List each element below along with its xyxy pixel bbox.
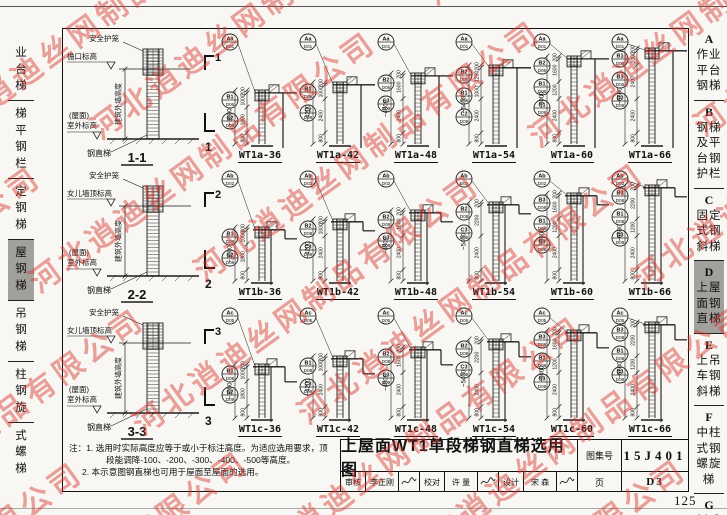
ref-bubble: AcD05 [456,308,472,324]
ref-code: Aa [539,36,547,42]
ref-bubble: C3D09 [300,242,316,258]
dim-label: 2200 [631,198,637,209]
dim-label: 1800 [241,251,247,262]
dim-label: 1000 [319,86,325,97]
ref-bubble: AbD02 [378,171,394,187]
diagram-rows: 建筑外墙高度檐口标高安全护笼(屋面)室外标高钢直梯1-11 1~36002001… [63,29,688,440]
ref-code: C1 [539,102,546,108]
ref-sheet: D09 [538,110,547,115]
ref-code: B3 [617,74,624,80]
ref-bubble: C3D09 [378,96,394,112]
dim-label: 800 [553,271,559,280]
dim-label: 800 [319,271,325,280]
section-view-3-3: 建筑外墙高度女儿墙顶标高安全护笼(屋面)室外标高钢直梯3-3 [63,303,203,440]
section-view-2-2: 建筑外墙高度女儿墙顶标高安全护笼(屋面)室外标高钢直梯2-2 [63,166,203,303]
ref-code: B3 [617,190,624,196]
ladder-drawing: ~6600200100024002400800AaD01B1D06B3D06C3… [611,32,689,150]
ladder-cell: ~480020016002400800AbD02B2D08C3D09WT1b-4… [377,169,455,303]
ref-code: B1 [617,211,624,217]
ref-bubble: C2D09 [300,105,316,121]
ref-sheet: D09 [460,372,469,377]
top-elevation-label: 檐口标高 [67,51,97,61]
cut-number: 1 [215,52,221,64]
ref-sheet: D08 [460,351,469,356]
ref-code: Ac [539,310,546,316]
ref-bubble: B1D06 [534,79,550,95]
ladder-cell: ~420020010002400800AcD05B1D08C3D09WT1c-4… [299,306,377,440]
ref-code: B2 [539,60,546,66]
ref-bubble: AcD05 [300,308,316,324]
cut-mark-top: 2 [204,192,220,210]
ladder-cell: ~5400200120010002400800AaD01B2D06B1D06C2… [455,32,533,166]
ref-sheet: D08 [538,226,547,231]
ref-code: Aa [461,36,469,42]
ref-bubble: AbD02 [612,171,628,187]
section-cut-marks: 2 2 [203,166,221,303]
ref-code: Ab [460,173,468,179]
ref-bubble: C2D09 [456,109,472,125]
left-tab-fragment-5: 柱钢旋 [8,362,34,423]
outdoor-elevation-label: 室外标高 [67,257,97,267]
sheet-no: D3 [622,471,688,492]
ref-sheet: D08 [226,376,235,381]
signature-scribble-icon [559,476,575,488]
ladder-drawing: ~480020016002400800AaD01B2D06C3D09 [377,32,455,150]
ref-sheet: D06 [616,82,625,87]
ladder-row-b: 建筑外墙高度女儿墙顶标高安全护笼(屋面)室外标高钢直梯2-22 2~360020… [63,166,688,303]
ladder-drawing: ~6600200220012002400800AcD05B3D08B1D08C3… [611,306,689,424]
dim-label: 2400 [397,110,403,121]
sig-printed-name: 许 量 [445,472,478,492]
ref-sheet: D06 [460,77,469,82]
tab-label: 上吊车钢斜梯 [696,354,722,401]
ref-sheet: D09 [382,106,391,111]
signature-strip: 审核李正刚校对许 量设计宋 森 [341,471,578,492]
bottom-trim-line [0,508,727,509]
ref-bubble: B1D06 [222,92,238,108]
dim-label: 2400 [319,247,325,258]
dim-label: 200 [241,224,247,233]
ref-code: B2 [461,206,468,212]
dim-label: 800 [319,134,325,143]
tab-letter: C [694,193,724,208]
dim-label: 200 [475,62,481,71]
cut-number: 2 [215,189,221,201]
ladder-name: WT1a-66 [628,150,672,166]
sig-role-label: 审核 [341,472,366,492]
ladder-row-a: 建筑外墙高度檐口标高安全护笼(屋面)室外标高钢直梯1-11 1~36002001… [63,29,688,166]
signature-scribble-icon [401,476,417,488]
dim-label: 1800 [241,114,247,125]
dim-label: 200 [397,344,403,353]
ref-bubble: B2D08 [456,341,472,357]
tab-letter: D [694,265,724,280]
ref-bubble: AaD01 [378,34,394,50]
ref-bubble: AcD05 [222,308,238,324]
ref-sheet: D05 [226,318,235,323]
dim-label: 800 [241,271,247,280]
cut-mark-bottom: 2 [204,250,221,287]
dim-label: 200 [553,190,559,199]
ref-bubble: AbD02 [222,171,238,187]
tab-B: B 钢梯及平台钢护栏 [694,101,724,189]
ref-code: C3 [539,376,546,382]
dim-label: 800 [475,408,481,417]
dim-label: 2400 [553,247,559,258]
ref-bubble: C2D09 [222,387,238,403]
ref-code: Ab [538,173,546,179]
ref-bubble: C3D09 [300,379,316,395]
dim-label: 1200 [631,359,637,370]
dim-label: 2400 [631,110,637,121]
tab-G: G 板式钢螺旋梯 [694,494,724,515]
drawing-frame: 建筑外墙高度檐口标高安全护笼(屋面)室外标高钢直梯1-11 1~36002001… [62,28,689,492]
sig-printed-name: 宋 森 [524,472,557,492]
tab-letter: G [694,498,724,513]
safety-cage-label: 安全护笼 [89,170,119,180]
ref-code: Aa [305,36,313,42]
dim-label: 2400 [475,384,481,395]
ladder-name: WT1b-42 [316,287,360,303]
ref-code: C3 [617,369,624,375]
ref-code: Ab [382,173,390,179]
dim-label: 200 [475,199,481,208]
section-view: 建筑外墙高度檐口标高安全护笼(屋面)室外标高钢直梯1-1 [63,29,203,166]
ref-sheet: D05 [304,318,313,323]
ref-bubble: B1D08 [222,366,238,382]
ladder-cell: ~420020010002400800AbD02B2D08C3D09WT1b-4… [299,169,377,303]
ref-bubble: AaD01 [534,34,550,50]
ladder-drawing: ~480020016002400800AbD02B2D08C3D09 [377,169,455,287]
ladder-drawing: ~420020010002400800AaD01B1D06C2D09 [299,32,377,150]
dim-label: 1600 [553,201,559,212]
ref-sheet: D06 [616,61,625,66]
section-view: 建筑外墙高度女儿墙顶标高安全护笼(屋面)室外标高钢直梯2-2 [63,166,203,303]
ref-bubble: C3D09 [612,93,628,109]
cut-corner-icon [204,55,214,70]
ref-bubble: B3D06 [612,72,628,88]
ref-bubble: AaD01 [612,34,628,50]
cut-mark-bottom: 3 [204,387,221,424]
ref-bubble: C3D09 [612,230,628,246]
cut-number: 1 [205,140,212,154]
outdoor-elevation-label: 室外标高 [67,394,97,404]
ladder-cell: ~6000200160012002400800AbD02B3D08B1D08C3… [533,169,611,303]
ladder-drawing: ~6000200160012002400800AbD02B3D08B1D08C3… [533,169,611,287]
ref-sheet: D08 [226,239,235,244]
ladder-name: WT1b-66 [628,287,672,303]
ref-code: Ab [226,173,234,179]
ladder-label: 钢直梯 [87,422,111,432]
ref-code: C2 [461,111,468,117]
dim-label: 200 [319,79,325,88]
ladder-label: 钢直梯 [87,285,111,295]
ladder-drawing: ~360020010001800800AaD01B1D06C2D09 [221,32,299,150]
dim-label: 800 [319,408,325,417]
ref-sheet: D09 [226,123,235,128]
ladder-cell: ~360020010001800800AcD05B1D08C2D09WT1c-3… [221,306,299,440]
ladder-drawing: ~5400200120010002400800AaD01B2D06B1D06C2… [455,32,533,150]
ref-bubble: C3D09 [456,362,472,378]
ref-bubble: C2D09 [222,113,238,129]
ref-bubble: B2D06 [456,67,472,83]
ladder-cell: ~360020010001800800AaD01B1D06C2D09WT1a-3… [221,32,299,166]
ref-bubble: C2D09 [222,250,238,266]
ladder-cell: ~480020016002400800AaD01B2D06C3D09WT1a-4… [377,32,455,166]
dim-label: 800 [631,408,637,417]
top-elevation-label: 女儿墙顶标高 [67,188,112,198]
left-tab-fragment-1: 梯平钢栏 [8,101,34,179]
tab-label: 梯平钢栏 [15,106,28,173]
ladder-drawing: ~420020010002400800AcD05B1D08C3D09 [299,306,377,424]
ref-code: B1 [461,90,468,96]
ref-bubble: B2D08 [456,204,472,220]
ladder-label: 钢直梯 [87,148,111,158]
dim-label: 200 [319,216,325,225]
ref-sheet: D02 [460,181,469,186]
ref-code: C3 [617,95,624,101]
top-trim-line [0,6,727,7]
ladder-drawing: ~360020010001800800AcD05B1D08C2D09 [221,306,299,424]
dim-label: 2400 [475,110,481,121]
left-tab-fragment-6: 式螺梯 [8,423,34,483]
ladder-cell: ~360020010001800800AbD02B1D08C2D09WT1b-3… [221,169,299,303]
ref-sheet: D09 [616,377,625,382]
ref-sheet: D01 [460,44,469,49]
dim-label: 200 [319,353,325,362]
ref-code: C3 [383,98,390,104]
dim-label: 200 [553,53,559,62]
left-tab-fragment-3: 屋钢梯 [8,240,34,301]
dim-label: 1200 [553,84,559,95]
ref-bubble: B1D06 [300,84,316,100]
ref-code: B1 [617,53,624,59]
ref-code: B1 [227,368,234,374]
ref-sheet: D09 [616,103,625,108]
notes: 注：1. 选用时实际高度应等于或小于标注高度。为适应选用要求，顶段能调降-100… [63,439,340,491]
handwritten-signature [399,472,420,492]
ref-sheet: D09 [538,384,547,389]
ladder-drawing: ~360020010001800800AbD02B1D08C2D09 [221,169,299,287]
ladder-name: WT1a-48 [394,150,438,166]
ref-sheet: D09 [304,389,313,394]
ref-bubble: B1D08 [300,358,316,374]
ref-bubble: B1D08 [612,209,628,225]
ref-sheet: D08 [382,359,391,364]
tab-label: 式螺梯 [15,428,28,478]
dim-label: 2200 [475,352,481,363]
ref-sheet: D01 [538,44,547,49]
ref-bubble: C3D09 [378,370,394,386]
dim-label: 2400 [553,384,559,395]
tab-A: A 作业平台钢梯 [694,28,724,101]
ref-sheet: D08 [304,231,313,236]
ladder-name: WT1b-60 [550,287,594,303]
cut-l-icon [204,113,215,132]
ref-bubble: C3D09 [534,237,550,253]
roof-label: (屋面) [69,385,89,394]
ref-bubble: AcD05 [612,308,628,324]
ladder-name: WT1a-42 [316,150,360,166]
dim-label: 1000 [631,52,637,63]
signature-scribble-icon [480,476,496,488]
section-title: 2-2 [128,287,147,302]
outdoor-elevation-label: 室外标高 [67,120,97,130]
ref-bubble: B3D08 [534,332,550,348]
ref-code: Ab [616,173,624,179]
dim-label: 1200 [553,221,559,232]
dim-label: 1000 [475,86,481,97]
tab-letter: F [694,410,724,425]
ref-bubble: C3D09 [612,367,628,383]
dim-label: 800 [475,134,481,143]
section-title: 1-1 [128,150,147,165]
ref-sheet: D02 [382,181,391,186]
roof-label: (屋面) [69,248,89,257]
cut-mark-top: 1 [204,55,220,73]
cut-l-icon [204,387,215,406]
tab-label: 屋钢梯 [15,245,28,295]
ref-sheet: D08 [616,335,625,340]
ladder-name: WT1b-54 [472,287,516,303]
dim-label: 200 [241,87,247,96]
dim-label: 2400 [319,384,325,395]
ladder-name: WT1b-48 [394,287,438,303]
cut-corner-icon [204,192,214,207]
left-tab-column: 业台梯梯平钢栏定钢梯屋钢梯吊钢梯柱钢旋式螺梯 [8,40,34,483]
ref-bubble: B1D06 [456,88,472,104]
cut-mark-bottom: 1 [204,113,221,150]
dim-label: 800 [397,408,403,417]
ref-code: Ac [461,310,468,316]
ref-sheet: D05 [382,318,391,323]
dim-label: 200 [397,70,403,79]
wall-height-label: 建筑外墙高度 [114,220,123,262]
dim-label: 2200 [631,335,637,346]
ladder-cell: ~540020022002400800AbD02B2D08C3D09WT1b-5… [455,169,533,303]
dim-label: 2200 [475,215,481,226]
wall-height-label: 建筑外墙高度 [114,83,123,125]
dim-label: 200 [631,182,637,191]
ref-bubble: B1D08 [534,353,550,369]
dim-label: 800 [241,408,247,417]
ref-code: B1 [227,231,234,237]
ref-bubble: AaD01 [456,34,472,50]
ref-sheet: D09 [460,119,469,124]
ref-bubble: B1D08 [222,229,238,245]
tab-letter: E [694,338,724,353]
section-cut-marks: 1 1 [203,29,221,166]
ref-sheet: D08 [304,368,313,373]
ref-sheet: D05 [616,318,625,323]
ref-code: C2 [227,252,234,258]
section-view: 建筑外墙高度女儿墙顶标高安全护笼(屋面)室外标高钢直梯3-3 [63,303,203,440]
dim-label: 800 [631,134,637,143]
ref-sheet: D01 [304,44,313,49]
ref-code: B2 [383,214,390,220]
ref-bubble: AcD05 [534,308,550,324]
dim-label: 800 [397,271,403,280]
bottom-band: 注：1. 选用时实际高度应等于或小于标注高度。为适应选用要求，顶段能调降-100… [63,439,688,491]
ref-sheet: D08 [382,222,391,227]
note-line: 2. 本示意图钢直梯也可用于屋面至屋面的选用。 [82,466,336,478]
sig-role-label: 校对 [420,472,445,492]
tab-label: 吊钢梯 [15,306,28,356]
tab-letter: B [694,105,724,120]
ref-code: B2 [461,343,468,349]
tab-label: 固定式钢斜梯 [696,209,722,256]
ladder-cell: ~6600200220012002400800AcD05B3D08B1D08C3… [611,306,689,440]
dim-label: 2400 [553,110,559,121]
dim-label: 1600 [397,355,403,366]
tab-label: 上屋面钢直梯 [696,281,722,328]
ref-code: Aa [617,36,625,42]
dim-label: 800 [553,408,559,417]
tab-E: E 上吊车钢斜梯 [694,334,724,407]
dim-label: 200 [631,45,637,54]
ladder-name: WT1a-60 [550,150,594,166]
ref-sheet: D09 [460,235,469,240]
cut-corner-icon [204,329,214,344]
ref-sheet: D02 [304,181,313,186]
title-block: 上屋面WT1单段梯钢直梯选用图 图集号 15J401 审核李正刚校对许 量设计宋… [340,439,688,491]
ref-bubble: AaD01 [300,34,316,50]
ref-code: B3 [617,327,624,333]
dim-label: 1600 [397,218,403,229]
ref-bubble: B1D08 [612,346,628,362]
ref-sheet: D08 [538,342,547,347]
ref-bubble: AbD02 [534,171,550,187]
ref-code: B1 [539,81,546,87]
ref-code: C3 [461,364,468,370]
ref-bubble: B2D06 [534,58,550,74]
dim-label: 1600 [553,64,559,75]
tab-label: 中柱式钢螺旋梯 [696,426,722,488]
ref-code: C3 [305,381,312,387]
dim-label: 800 [631,271,637,280]
ladder-drawing: ~6600200220012002400800AbD02B3D08B1D08C3… [611,169,689,287]
ref-sheet: D09 [304,115,313,120]
ref-sheet: D02 [538,181,547,186]
ref-code: C3 [305,244,312,250]
ref-sheet: D01 [382,44,391,49]
ref-bubble: B2D08 [378,212,394,228]
ref-sheet: D08 [538,363,547,368]
page-number: 125 [674,493,697,509]
section-view-1-1: 建筑外墙高度檐口标高安全护笼(屋面)室外标高钢直梯1-1 [63,29,203,166]
ref-code: Ab [304,173,312,179]
ref-bubble: C3D09 [534,374,550,390]
ladder-drawing: ~480020016002400800AcD05B2D08C3D09 [377,306,455,424]
ladder-name: WT1b-36 [238,287,282,303]
dim-label: 1000 [319,360,325,371]
dim-label: 1000 [241,94,247,105]
tab-C: C 固定式钢斜梯 [694,189,724,262]
ref-bubble: B2D06 [378,75,394,91]
dim-label: 1600 [553,338,559,349]
ref-bubble: B3D08 [612,325,628,341]
ref-bubble: B2D08 [300,221,316,237]
ref-code: B2 [461,69,468,75]
ref-code: B2 [305,223,312,229]
ref-sheet: D02 [616,181,625,186]
dim-label: 800 [241,134,247,143]
dim-label: 800 [553,134,559,143]
ref-bubble: AbD02 [456,171,472,187]
ref-bubble: C3D09 [456,225,472,241]
dim-label: 1200 [553,358,559,369]
ladder-name: WT1a-54 [472,150,516,166]
